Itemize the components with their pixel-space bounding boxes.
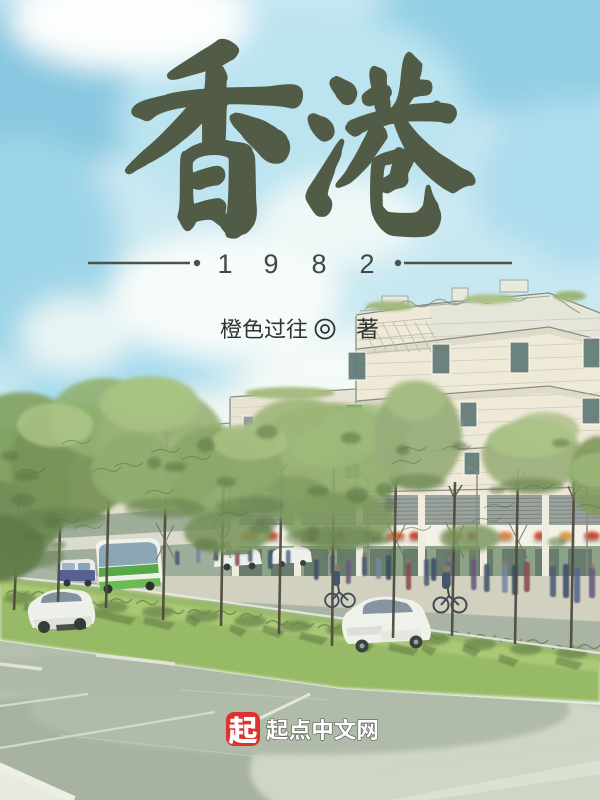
svg-text:8: 8 [311, 249, 326, 279]
svg-text:1: 1 [217, 249, 232, 279]
svg-text:2: 2 [359, 249, 374, 279]
svg-text:9: 9 [263, 249, 278, 279]
